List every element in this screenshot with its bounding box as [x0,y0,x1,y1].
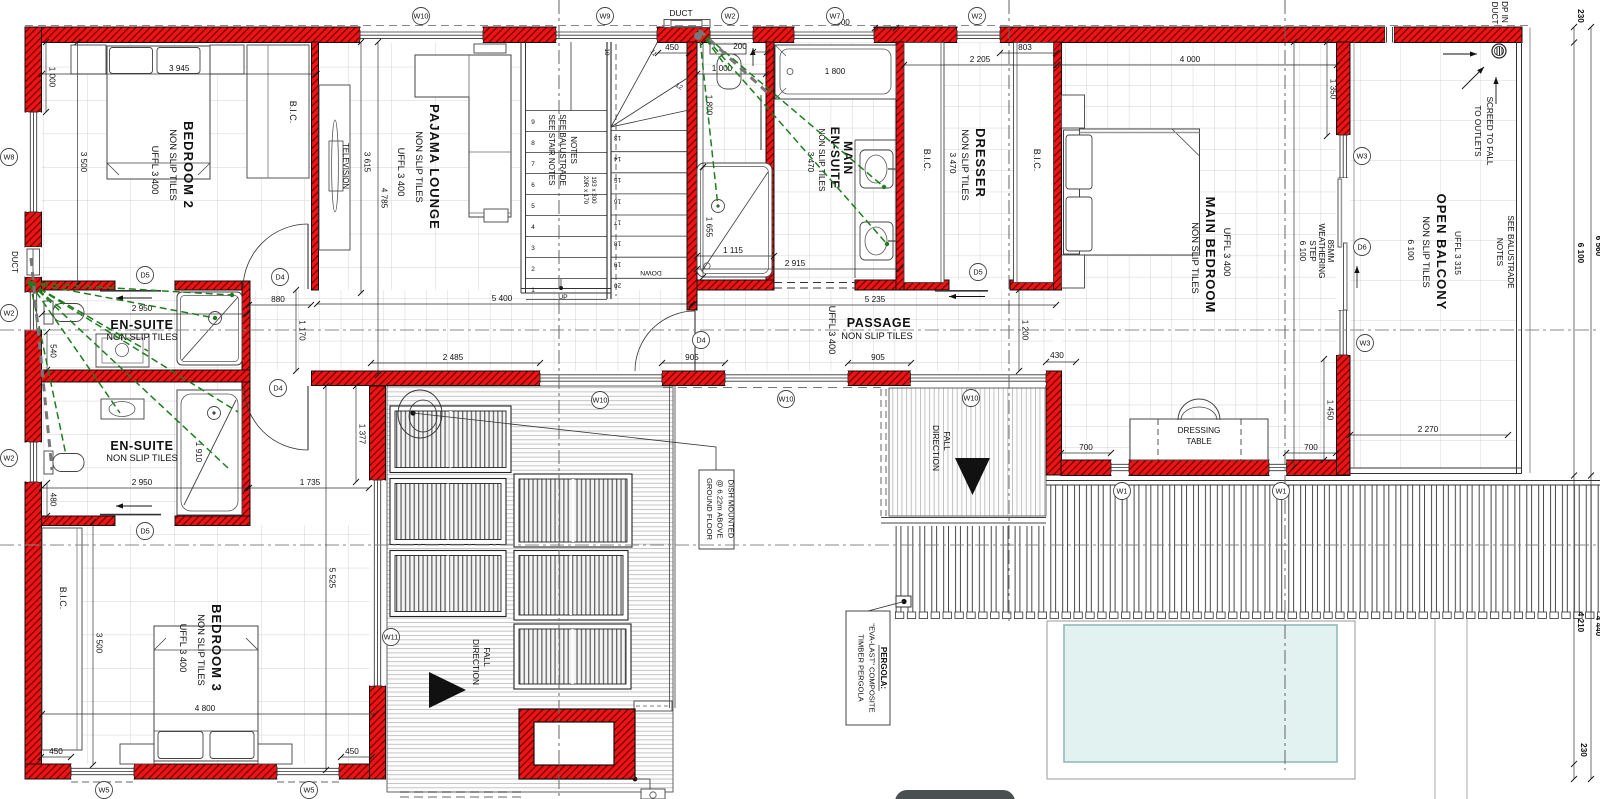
svg-text:UP: UP [558,294,568,301]
svg-text:B.I.C.: B.I.C. [288,101,298,124]
svg-text:450: 450 [345,747,359,756]
svg-text:1 655: 1 655 [705,217,714,238]
svg-text:7: 7 [531,161,535,168]
svg-text:NON SLIP TILES: NON SLIP TILES [414,131,424,202]
svg-text:NOTES: NOTES [569,136,578,164]
svg-text:4 440: 4 440 [1594,616,1600,637]
svg-text:W3: W3 [1360,339,1371,348]
svg-text:4 210: 4 210 [1576,612,1585,633]
svg-text:10: 10 [603,48,610,56]
svg-text:905: 905 [685,353,699,362]
svg-text:1 000: 1 000 [48,67,57,88]
svg-text:UFFL 3 315: UFFL 3 315 [1453,231,1463,275]
svg-text:8: 8 [531,140,535,147]
svg-text:DRESSER: DRESSER [973,128,988,198]
svg-text:5: 5 [531,203,535,210]
svg-text:193 x 300: 193 x 300 [590,176,597,204]
svg-text:"EVA-LAST" COMPOSITE: "EVA-LAST" COMPOSITE [868,623,877,712]
svg-text:MAIN BEDROOM: MAIN BEDROOM [1203,197,1218,314]
svg-text:OPEN BALCONY: OPEN BALCONY [1434,194,1449,311]
svg-text:W10: W10 [413,12,428,21]
svg-text:200: 200 [733,42,747,51]
svg-text:2 915: 2 915 [785,259,806,268]
svg-text:230: 230 [1576,9,1585,23]
svg-text:D4: D4 [275,273,284,282]
svg-text:PASSAGE: PASSAGE [847,316,911,330]
svg-text:UFFL 3 400: UFFL 3 400 [396,148,406,197]
svg-text:SEE STAIR NOTES: SEE STAIR NOTES [547,115,556,186]
svg-text:DRESSING: DRESSING [1178,426,1221,435]
svg-text:UFFL 3 400: UFFL 3 400 [827,306,837,355]
svg-text:1 170: 1 170 [298,320,307,341]
svg-text:DUCT: DUCT [10,251,19,273]
svg-text:DIRECTION: DIRECTION [471,639,481,685]
svg-text:4 785: 4 785 [380,188,389,209]
svg-text:NON SLIP TILES: NON SLIP TILES [168,129,178,200]
svg-text:2 485: 2 485 [443,353,464,362]
svg-text:20R x 170: 20R x 170 [582,176,589,205]
svg-text:B.I.C.: B.I.C. [58,587,68,610]
svg-text:3 500: 3 500 [95,633,104,654]
svg-text:540: 540 [49,344,58,358]
svg-text:NON SLIP TILES: NON SLIP TILES [817,129,826,192]
svg-text:430: 430 [1050,351,1064,360]
svg-text:NON SLIP TILES: NON SLIP TILES [1421,216,1431,287]
svg-text:NON SLIP TILES: NON SLIP TILES [196,614,206,685]
svg-text:450: 450 [49,747,63,756]
svg-text:D5: D5 [140,527,149,536]
svg-text:450: 450 [665,43,679,52]
svg-text:17: 17 [614,218,622,225]
svg-text:NON SLIP TILES: NON SLIP TILES [1190,222,1200,293]
svg-text:18: 18 [614,240,622,247]
svg-text:3: 3 [531,245,535,252]
svg-text:TABLE: TABLE [1186,437,1212,446]
svg-text:TIMBER PERGOLA: TIMBER PERGOLA [857,634,866,702]
svg-text:5 235: 5 235 [865,295,886,304]
svg-text:1 735: 1 735 [300,478,321,487]
svg-text:4 800: 4 800 [195,704,216,713]
svg-text:B.I.C.: B.I.C. [922,149,932,172]
svg-text:UFFL 3 400: UFFL 3 400 [178,624,188,673]
svg-text:NOTES: NOTES [1495,238,1504,267]
svg-text:BEDROOM 2: BEDROOM 2 [181,121,196,209]
svg-text:B.I.C.: B.I.C. [1032,149,1042,172]
svg-text:PERGOLA:: PERGOLA: [879,647,888,689]
svg-text:W8: W8 [4,153,15,162]
svg-text:D5: D5 [140,271,149,280]
svg-text:803: 803 [1018,43,1032,52]
svg-text:2: 2 [531,266,535,273]
svg-text:2 270: 2 270 [1418,425,1439,434]
svg-text:D5: D5 [973,268,982,277]
svg-text:W11: W11 [384,633,398,642]
svg-text:DP IN: DP IN [1500,1,1509,23]
svg-text:1 910: 1 910 [194,442,203,463]
svg-text:NON SLIP TILES: NON SLIP TILES [106,453,177,463]
svg-text:6 560: 6 560 [1594,236,1600,257]
svg-text:13: 13 [614,134,622,141]
svg-text:W5: W5 [99,786,110,795]
svg-text:20: 20 [614,282,622,289]
svg-text:NON SLIP TILES: NON SLIP TILES [841,331,912,341]
svg-text:880: 880 [271,295,285,304]
svg-text:D4: D4 [273,384,282,393]
svg-text:480: 480 [49,493,58,507]
svg-text:EN-SUITE: EN-SUITE [110,318,173,332]
svg-text:DIRECTION: DIRECTION [931,425,941,471]
svg-text:6 100: 6 100 [1576,243,1585,264]
svg-text:W10: W10 [778,395,793,404]
svg-text:W1: W1 [1276,487,1287,496]
svg-text:700: 700 [1304,443,1318,452]
svg-text:1 377: 1 377 [358,424,367,445]
svg-text:MAIN: MAIN [841,141,855,175]
svg-text:SCREED TO FALL: SCREED TO FALL [1485,97,1494,166]
svg-text:@ 6.22m ABOVE: @ 6.22m ABOVE [716,480,725,539]
svg-text:700: 700 [1079,443,1093,452]
svg-text:14: 14 [614,155,622,162]
svg-text:85MM: 85MM [1326,240,1335,263]
svg-text:2 950: 2 950 [132,478,153,487]
svg-text:W10: W10 [592,396,607,405]
svg-text:1 200: 1 200 [1021,320,1030,341]
svg-text:W10: W10 [963,394,978,403]
svg-text:UFFL 3 400: UFFL 3 400 [1222,228,1232,277]
svg-text:905: 905 [871,353,885,362]
svg-text:3 615: 3 615 [363,152,372,173]
svg-text:3 945: 3 945 [169,64,190,73]
svg-text:DUCT: DUCT [1490,2,1499,25]
svg-text:W2: W2 [725,12,736,21]
svg-text:FALL: FALL [942,431,952,451]
svg-text:SEE BALUSTRADE: SEE BALUSTRADE [1506,215,1515,289]
svg-text:15: 15 [614,176,622,183]
svg-text:FALL: FALL [482,647,492,667]
svg-text:DUCT: DUCT [669,8,692,18]
svg-text:NON SLIP TILES: NON SLIP TILES [960,129,970,200]
svg-text:STEP: STEP [1308,240,1317,262]
svg-text:2 205: 2 205 [970,55,991,64]
svg-text:1 115: 1 115 [723,246,743,255]
svg-text:1: 1 [531,287,535,294]
svg-text:W2: W2 [972,12,983,21]
svg-text:W7: W7 [830,12,841,21]
svg-text:D4: D4 [696,336,705,345]
svg-text:1 450: 1 450 [1326,400,1335,421]
svg-text:EN-SUITE: EN-SUITE [110,439,173,453]
svg-text:PAJAMA LOUNGE: PAJAMA LOUNGE [427,104,442,230]
svg-text:6 100: 6 100 [1406,240,1416,261]
svg-text:3 470: 3 470 [806,152,815,173]
svg-text:DOWN: DOWN [640,269,662,276]
svg-text:1 350: 1 350 [1329,79,1338,100]
svg-text:3 500: 3 500 [79,152,88,173]
svg-text:W2: W2 [4,454,15,463]
svg-text:1 800: 1 800 [825,67,846,76]
svg-text:GROUND FLOOR: GROUND FLOOR [705,478,714,541]
svg-text:5 400: 5 400 [492,294,513,303]
svg-text:TO OUTLETS: TO OUTLETS [1473,105,1482,157]
svg-text:D6: D6 [1357,243,1366,252]
svg-text:6 100: 6 100 [1298,241,1307,262]
svg-text:W5: W5 [304,786,315,795]
svg-text:5 525: 5 525 [328,568,337,589]
svg-text:3 470: 3 470 [948,153,958,174]
svg-text:16: 16 [614,197,622,204]
svg-text:TELEVISION: TELEVISION [341,143,350,189]
svg-text:WEATHERING: WEATHERING [1317,224,1326,279]
svg-text:W1: W1 [1117,487,1128,496]
svg-text:UFFL 3 400: UFFL 3 400 [150,146,160,195]
svg-text:4 000: 4 000 [1180,55,1201,64]
svg-text:9: 9 [531,119,535,126]
svg-text:230: 230 [1579,743,1588,757]
svg-text:19: 19 [614,261,622,268]
svg-text:DISH MOUNTED: DISH MOUNTED [727,480,736,539]
svg-text:BEDROOM 3: BEDROOM 3 [209,604,224,692]
svg-text:4: 4 [531,224,535,231]
svg-text:W2: W2 [4,309,15,318]
svg-text:W9: W9 [600,12,611,21]
svg-text:6: 6 [531,182,535,189]
svg-text:W3: W3 [1357,152,1368,161]
